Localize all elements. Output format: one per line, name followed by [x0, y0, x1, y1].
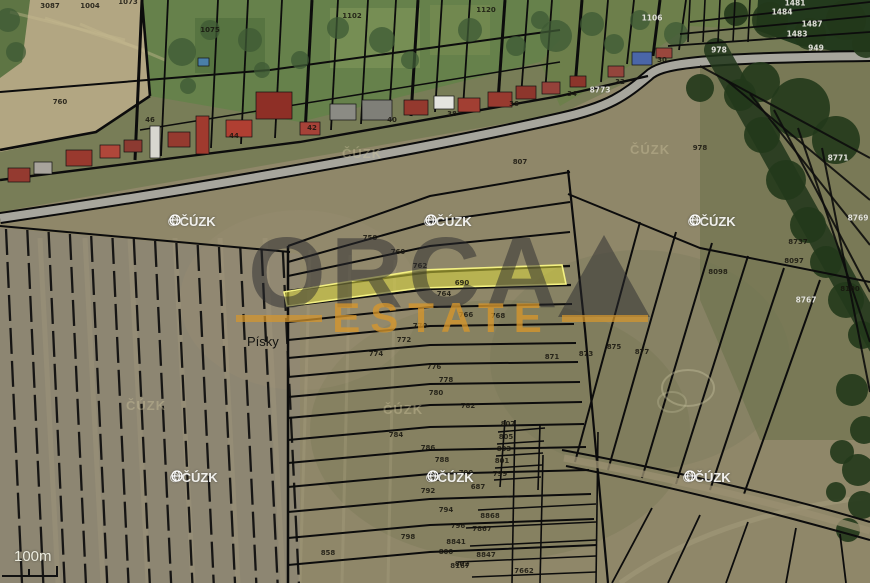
map-viewport[interactable]: 3087100410731075110211207604644424038363… — [0, 0, 870, 583]
cadastral-map[interactable] — [0, 0, 870, 583]
tree-blob — [686, 74, 714, 102]
tree-blob — [506, 36, 526, 56]
tree-blob — [826, 482, 846, 502]
tree-blob — [6, 42, 26, 62]
tree-blob — [238, 28, 262, 52]
place-label: Písky — [247, 334, 279, 349]
tree-blob — [254, 62, 270, 78]
tree-blob — [828, 282, 864, 318]
tree-blob — [630, 10, 650, 30]
tree-blob — [369, 27, 395, 53]
tree-blob — [327, 17, 349, 39]
tree-blob — [401, 51, 419, 69]
tree-blob — [604, 34, 624, 54]
tree-blob — [291, 51, 309, 69]
tree-blob — [458, 18, 482, 42]
tree-blob — [580, 12, 604, 36]
tree-blob — [752, 2, 788, 38]
tree-blob — [180, 78, 196, 94]
tree-blob — [790, 207, 826, 243]
tree-blob — [766, 160, 806, 200]
tree-blob — [200, 20, 220, 40]
tree-blob — [836, 374, 868, 406]
scale-label: 100m — [14, 548, 52, 565]
tree-blob — [168, 38, 196, 66]
tree-blob — [531, 11, 549, 29]
tree-blob — [724, 2, 748, 26]
